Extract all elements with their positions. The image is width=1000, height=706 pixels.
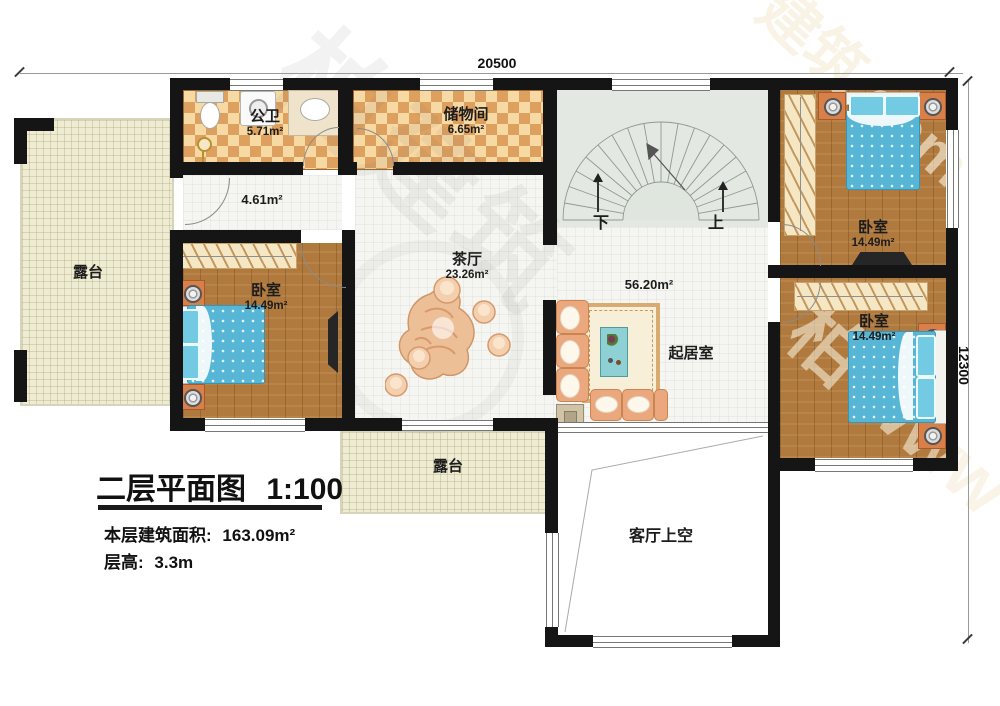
room-name: 卧室	[823, 219, 923, 237]
wall	[545, 635, 593, 647]
wall	[170, 418, 205, 431]
window	[205, 419, 305, 432]
throw-pillow	[595, 396, 618, 413]
pillow	[884, 95, 920, 117]
tv-screen	[328, 311, 338, 373]
room-name: 起居室	[641, 345, 741, 363]
throw-pillow	[560, 306, 580, 330]
throw-pillow	[560, 374, 580, 398]
coffee-table	[600, 327, 628, 377]
dimension-height: 12300	[950, 325, 972, 405]
room-area: 14.49m²	[824, 331, 924, 345]
terrace-left-floor	[20, 118, 174, 406]
floor-height-value: 3.3m	[154, 553, 193, 572]
wall	[710, 78, 958, 90]
wall	[493, 418, 545, 431]
stair-up-label: 上	[703, 214, 729, 233]
room-area: 5.71m²	[215, 126, 315, 140]
nightstand	[818, 92, 846, 120]
room-label-terrace-left: 露台	[58, 264, 118, 282]
floor-height-label: 层高:	[104, 553, 144, 572]
room-label-storage: 储物间 6.65m²	[416, 106, 516, 138]
plan-title: 二层平面图	[96, 473, 246, 506]
room-label-void: 客厅上空	[611, 527, 711, 546]
room-area: 6.65m²	[416, 124, 516, 138]
wall	[768, 420, 780, 647]
wall	[170, 162, 303, 175]
plan-scale: 1:100	[266, 473, 343, 506]
nightstand	[918, 421, 946, 449]
wall	[913, 458, 958, 471]
wall	[14, 118, 27, 164]
room-name: 卧室	[216, 282, 316, 300]
floor-plan: 柏建筑 建筑.com 柏 www	[0, 0, 1000, 706]
tea-table	[385, 272, 515, 404]
throw-pillow	[627, 396, 650, 413]
wall	[355, 418, 402, 431]
window	[947, 130, 959, 228]
stair-down-label: 下	[588, 214, 614, 233]
pillow	[849, 95, 885, 117]
nightstand	[918, 92, 946, 120]
floor-area-row: 本层建筑面积: 163.09m²	[104, 521, 404, 546]
wall	[170, 230, 183, 418]
wardrobe-rail	[800, 97, 801, 231]
dimension-line-top	[20, 73, 963, 74]
room-name: 公卫	[215, 108, 315, 126]
room-label-bedroom-left: 卧室 14.49m²	[216, 282, 316, 314]
room-name: 储物间	[416, 106, 516, 124]
floor-height-row: 层高: 3.3m	[104, 548, 404, 573]
cup-icon	[616, 360, 621, 365]
pillow	[916, 377, 936, 419]
pillow	[181, 344, 200, 380]
floor-drain-icon	[197, 137, 212, 152]
stair-arrow-icon	[593, 173, 603, 182]
wall	[305, 418, 355, 431]
wall	[545, 418, 558, 533]
window	[815, 459, 913, 472]
wardrobe-rail	[180, 256, 292, 257]
sliding-door	[402, 420, 493, 431]
staircase-steps	[555, 90, 768, 227]
wall	[543, 300, 556, 395]
wall	[732, 635, 780, 647]
wall	[170, 230, 301, 243]
sofa-armrest	[654, 389, 668, 421]
wall	[543, 78, 557, 245]
lamp-icon	[924, 427, 942, 445]
room-name: 茶厅	[417, 251, 517, 269]
window	[612, 79, 710, 91]
throw-pillow	[560, 340, 580, 364]
stair-arrow-line	[597, 182, 599, 212]
room-label-living: 起居室	[641, 345, 741, 363]
room-name: 卧室	[824, 313, 924, 331]
room-label-bedroom-mid-right: 卧室 14.49m²	[824, 313, 924, 345]
dimension-tick	[14, 67, 25, 78]
window	[230, 79, 283, 91]
wall	[338, 162, 357, 175]
title-underline	[98, 505, 322, 510]
room-label-terrace-bottom: 露台	[418, 458, 478, 476]
dimension-width: 20500	[457, 55, 537, 71]
wardrobe	[784, 94, 816, 236]
wall	[780, 265, 958, 278]
lamp-icon	[824, 98, 842, 116]
bed-sheet	[898, 332, 913, 420]
tv-screen	[852, 252, 912, 265]
wardrobe	[177, 243, 297, 269]
room-label-hallway: 4.61m²	[222, 192, 302, 208]
room-area: 14.49m²	[216, 300, 316, 314]
wall	[393, 162, 545, 175]
wall	[768, 90, 780, 222]
room-name: 露台	[58, 264, 118, 282]
room-label-tea-hall: 茶厅 23.26m²	[417, 251, 517, 283]
room-label-living-area: 56.20m²	[604, 277, 694, 293]
wall	[946, 78, 958, 130]
dimension-tick	[944, 67, 955, 78]
wall	[170, 78, 230, 90]
cup-icon	[608, 358, 613, 363]
wall	[14, 350, 27, 402]
flower-decor	[607, 334, 620, 347]
plan-title-row: 二层平面图 1:100	[96, 464, 376, 508]
room-name: 露台	[418, 458, 478, 476]
lamp-icon	[184, 285, 202, 303]
window	[546, 533, 559, 627]
wall	[338, 90, 353, 168]
wall	[768, 265, 780, 278]
room-label-bedroom-top-right: 卧室 14.49m²	[823, 219, 923, 251]
room-label-bathroom: 公卫 5.71m²	[215, 108, 315, 140]
wall	[283, 78, 420, 90]
window	[593, 636, 732, 648]
window	[420, 79, 493, 91]
pillow	[181, 309, 200, 345]
stair-arrow-line	[722, 190, 724, 212]
room-area: 23.26m²	[417, 269, 517, 283]
lamp-icon	[184, 389, 202, 407]
lamp-icon	[924, 98, 942, 116]
floor-area-label: 本层建筑面积:	[104, 526, 212, 545]
floor-area-value: 163.09m²	[222, 526, 295, 545]
stair-arrow-icon	[718, 181, 728, 190]
window	[558, 422, 768, 433]
room-area: 14.49m²	[823, 237, 923, 251]
